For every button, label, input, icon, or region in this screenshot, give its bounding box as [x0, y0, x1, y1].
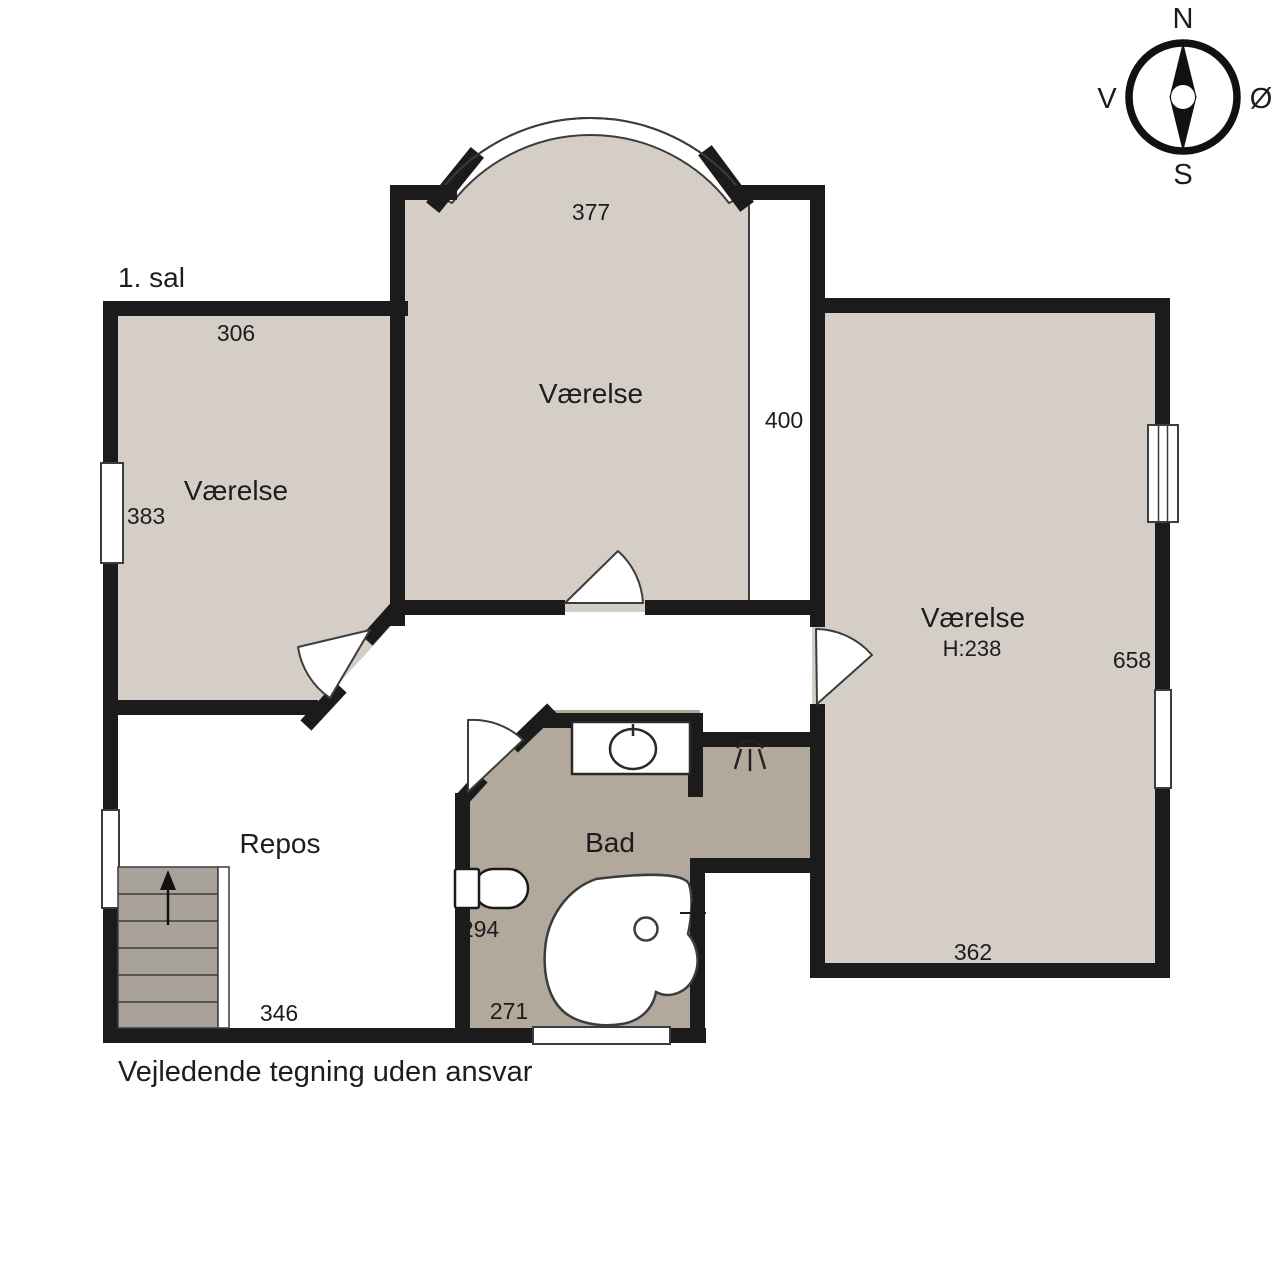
- window-left-room: [101, 463, 123, 563]
- sink: [572, 722, 690, 774]
- compass-north: N: [1173, 3, 1194, 35]
- toilet: [455, 869, 528, 908]
- floor-plan: N S V Ø 1. sal Værelse 306 383 Værelse 3…: [0, 0, 1280, 1280]
- compass-rose: N S V Ø: [1097, 3, 1272, 191]
- bath-dim-b: 271: [490, 998, 528, 1024]
- window-bath: [533, 1027, 670, 1044]
- bath-dim-a: 294: [461, 916, 500, 942]
- room-right-ceiling: H:238: [943, 636, 1002, 661]
- room-top-label: Værelse: [539, 378, 643, 409]
- bath-label: Bad: [585, 827, 635, 858]
- top-room-strip: [749, 199, 811, 608]
- window-landing: [102, 810, 119, 908]
- bathtub-drain: [635, 918, 658, 941]
- compass-west: V: [1097, 83, 1117, 115]
- disclaimer: Vejledende tegning uden ansvar: [118, 1056, 533, 1088]
- window-right-room-lower: [1155, 690, 1171, 788]
- room-right-label: Værelse: [921, 602, 1025, 633]
- room-top-width: 377: [572, 199, 610, 225]
- window-right-room-upper: [1148, 425, 1178, 522]
- landing-label: Repos: [240, 828, 321, 859]
- page-title: 1. sal: [118, 262, 185, 293]
- room-top-depth: 400: [765, 407, 803, 433]
- landing-width: 346: [260, 1000, 298, 1026]
- room-left-width: 306: [217, 320, 255, 346]
- room-right-depth: 658: [1113, 647, 1151, 673]
- room-left-depth: 383: [127, 503, 165, 529]
- room-left-label: Værelse: [184, 475, 288, 506]
- stairs: [118, 867, 229, 1028]
- room-right-width: 362: [954, 939, 992, 965]
- compass-east: Ø: [1250, 83, 1273, 115]
- compass-south: S: [1173, 159, 1192, 191]
